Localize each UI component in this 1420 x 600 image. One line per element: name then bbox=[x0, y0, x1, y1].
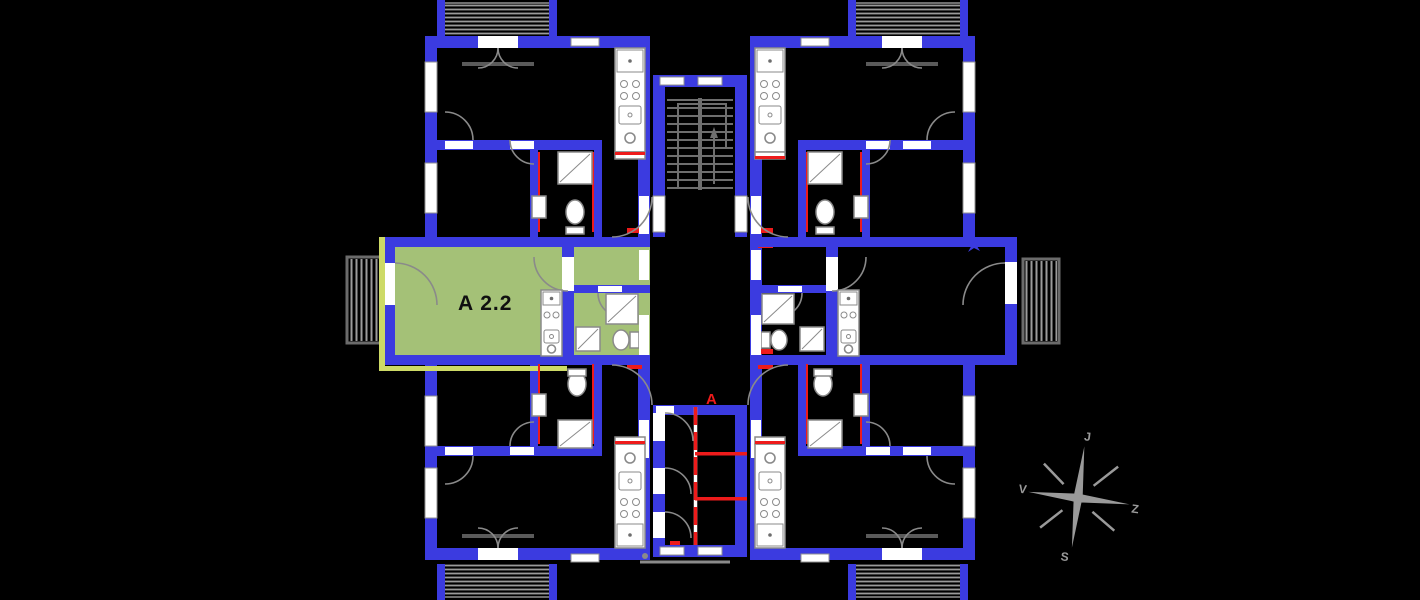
bathroom-bottom-left bbox=[532, 364, 594, 448]
compass-label-right: Z bbox=[1131, 502, 1140, 517]
section-marker-label: A bbox=[706, 391, 717, 408]
compass-rose: J Z S V bbox=[1010, 422, 1147, 572]
balcony-bottom-left bbox=[437, 564, 557, 600]
balcony-top-right bbox=[848, 0, 968, 36]
balcony-bottom-right bbox=[848, 564, 968, 600]
stairwell bbox=[640, 75, 747, 562]
kitchen-bottom-right bbox=[755, 437, 785, 548]
balcony-top-left bbox=[437, 0, 557, 36]
floor-plan-canvas: A bbox=[0, 0, 1420, 600]
balcony-unit-a22 bbox=[347, 257, 383, 343]
stair-treads bbox=[667, 98, 733, 190]
balcony-middle-right bbox=[1023, 259, 1059, 343]
unit-middle-right bbox=[750, 237, 1017, 365]
unit-a22[interactable]: A 2.2 bbox=[379, 237, 650, 371]
bathroom-middle-right bbox=[761, 294, 824, 351]
compass-label-left: V bbox=[1018, 482, 1028, 497]
kitchen-bottom-left bbox=[615, 437, 645, 548]
compass-label-bottom: S bbox=[1060, 549, 1070, 564]
compass-label-top: J bbox=[1083, 429, 1091, 444]
unit-label: A 2.2 bbox=[458, 292, 512, 315]
bathroom-top-right bbox=[806, 152, 868, 234]
kitchen-top-left bbox=[615, 48, 645, 159]
bathroom-top-left bbox=[532, 152, 594, 234]
kitchen-middle-right bbox=[838, 290, 859, 356]
kitchen-top-right bbox=[755, 48, 785, 159]
floor-plan: A bbox=[0, 0, 1420, 600]
kitchen-a22 bbox=[541, 290, 562, 356]
bathroom-bottom-right bbox=[806, 364, 868, 448]
